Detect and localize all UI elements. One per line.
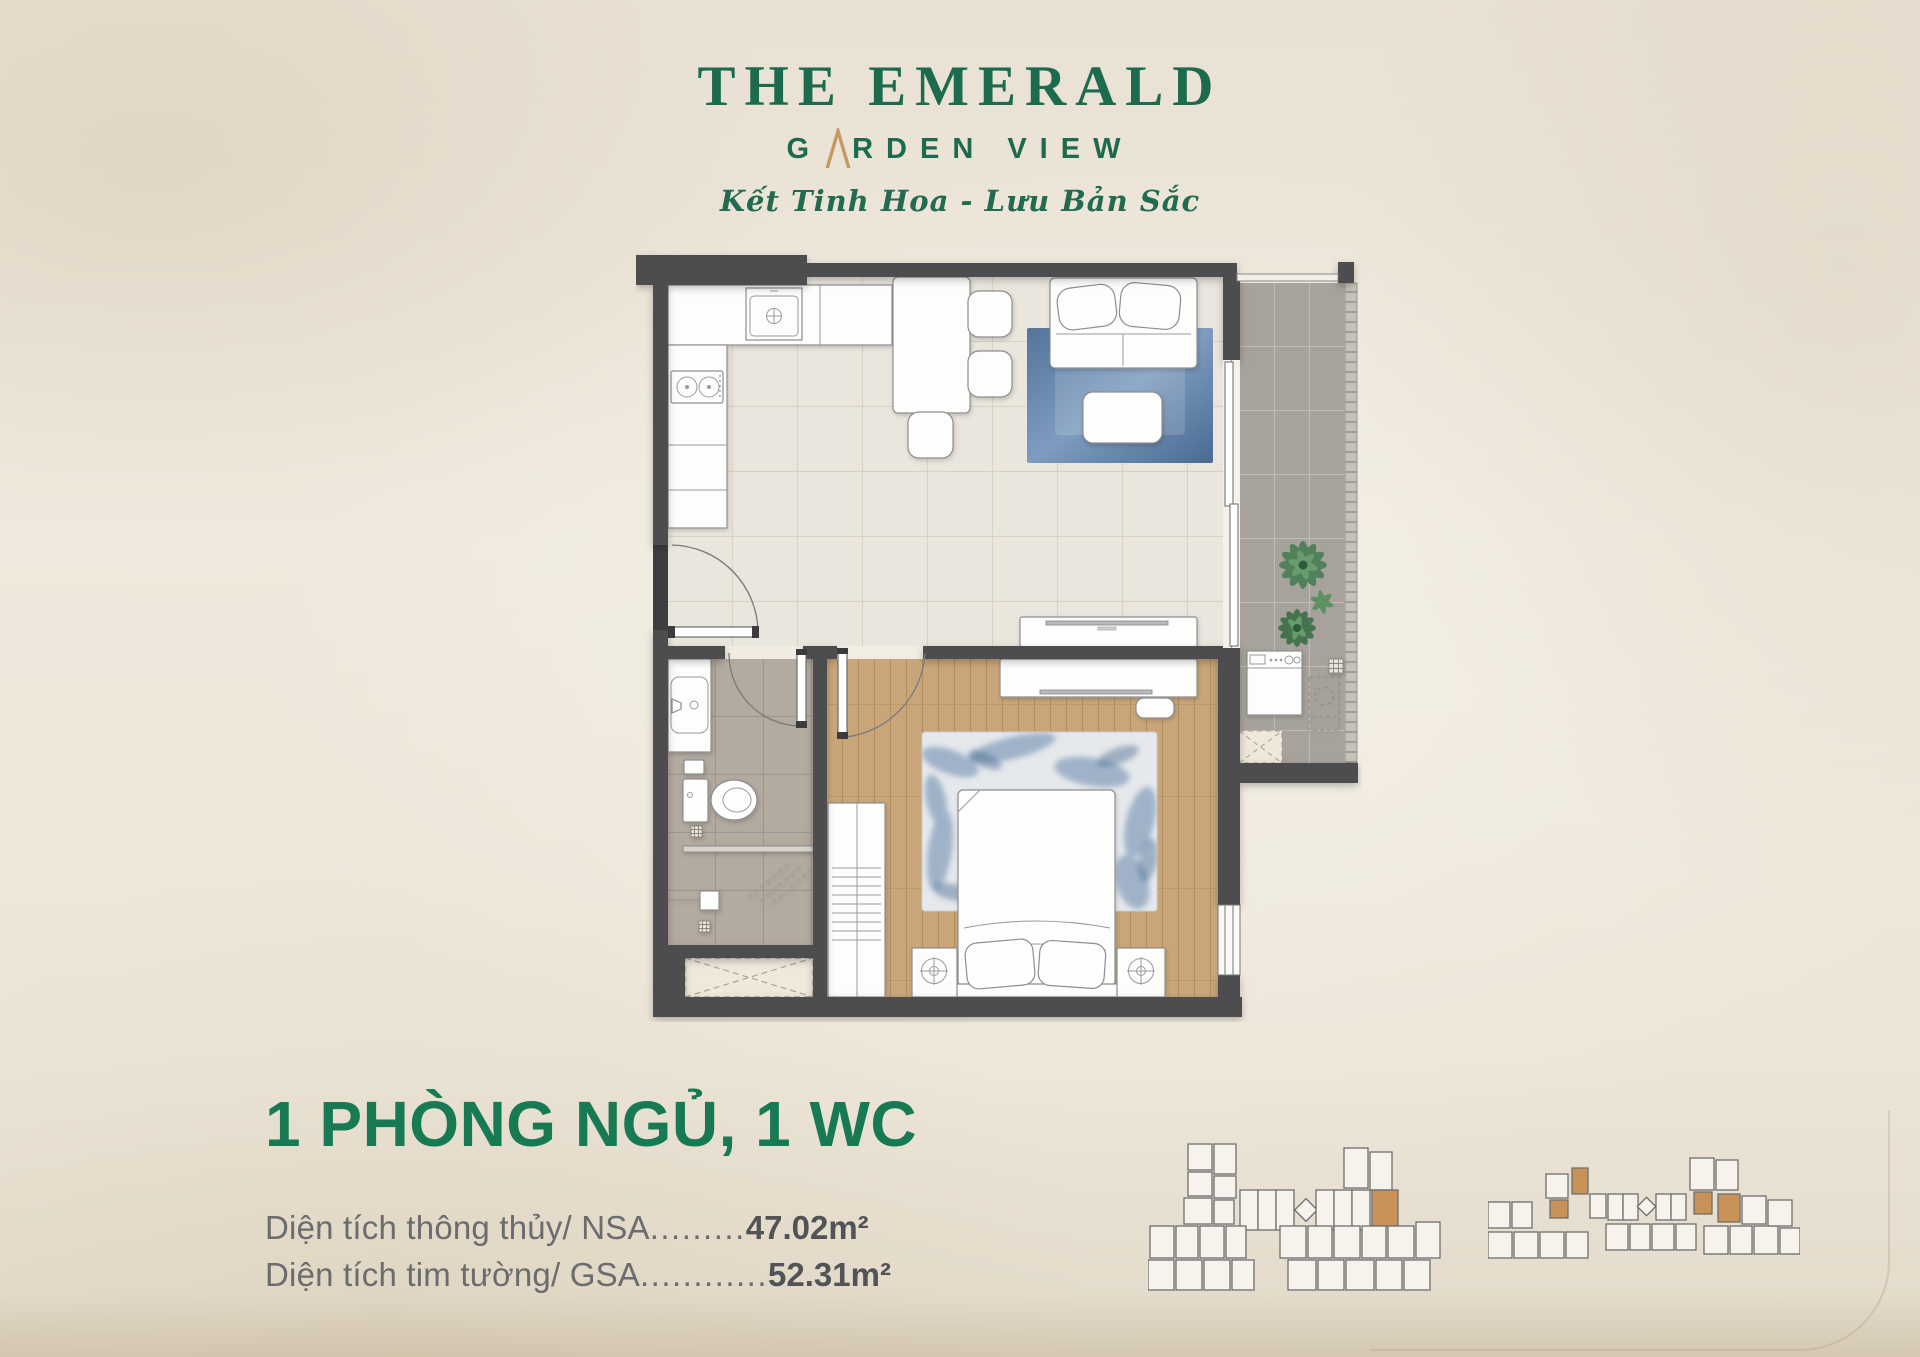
nsa-label: Diện tích thông thủy/ NSA bbox=[265, 1209, 650, 1246]
sofa bbox=[1050, 278, 1197, 368]
washing-machine bbox=[1247, 651, 1302, 715]
bathroom-vanity bbox=[668, 659, 711, 752]
bedroom-bench bbox=[1136, 698, 1174, 718]
area-row-nsa: Diện tích thông thủy/ NSA.........47.02m… bbox=[265, 1204, 917, 1251]
brand-sub-pre: G bbox=[787, 133, 823, 165]
nightstand-left bbox=[912, 948, 957, 997]
coffee-table bbox=[1083, 392, 1162, 443]
highlighted-unit bbox=[1572, 1168, 1588, 1194]
unit-title: 1 PHÒNG NGỦ, 1 WC bbox=[265, 1092, 917, 1156]
kitchen-sink bbox=[746, 288, 802, 340]
brand-subtitle: GRDEN VIEW bbox=[0, 126, 1920, 172]
letter-a-triangle-icon bbox=[825, 128, 851, 174]
tv-cabinet bbox=[1020, 617, 1197, 648]
brand-name: THE EMERALD bbox=[0, 58, 1920, 115]
area-row-gsa: Diện tích tim tường/ GSA............52.3… bbox=[265, 1251, 917, 1298]
gsa-label: Diện tích tim tường/ GSA bbox=[265, 1256, 640, 1293]
ac-ledge bbox=[685, 958, 813, 997]
bottom-shadow-band bbox=[0, 1293, 1920, 1357]
bedroom-window bbox=[1218, 905, 1240, 975]
bed bbox=[951, 790, 1122, 997]
brand-logo: THE EMERALD GRDEN VIEW Kết Tinh Hoa - Lư… bbox=[0, 58, 1920, 218]
site-keyplan-left bbox=[1148, 1142, 1448, 1294]
balcony-mat bbox=[1239, 731, 1282, 763]
wardrobe bbox=[828, 803, 885, 997]
brand-tagline: Kết Tinh Hoa - Lưu Bản Sắc bbox=[0, 184, 1920, 218]
keyplan-left-units bbox=[1148, 1144, 1440, 1290]
brand-sub-post: RDEN VIEW bbox=[852, 133, 1133, 165]
floor-plan-drawing bbox=[636, 250, 1362, 1022]
keyplan-right-units bbox=[1488, 1158, 1800, 1258]
balcony-drain-strip bbox=[1345, 283, 1357, 763]
stove bbox=[671, 371, 723, 403]
highlighted-unit bbox=[1718, 1194, 1740, 1222]
site-keyplan-right bbox=[1488, 1154, 1800, 1270]
sliding-door bbox=[1223, 360, 1240, 648]
gsa-value: 52.31m² bbox=[768, 1256, 891, 1293]
highlighted-unit bbox=[1694, 1192, 1712, 1214]
balcony-railing bbox=[1237, 274, 1338, 281]
nightstand-right bbox=[1117, 948, 1165, 997]
dining-table bbox=[893, 277, 970, 413]
bedroom-dresser bbox=[1000, 659, 1197, 697]
area-rows: Diện tích thông thủy/ NSA.........47.02m… bbox=[265, 1204, 917, 1298]
unit-info: 1 PHÒNG NGỦ, 1 WC Diện tích thông thủy/ … bbox=[265, 1092, 917, 1298]
nsa-dots: ......... bbox=[650, 1209, 746, 1246]
nsa-value: 47.02m² bbox=[746, 1209, 869, 1246]
highlighted-unit bbox=[1550, 1200, 1568, 1218]
highlighted-unit bbox=[1372, 1190, 1398, 1226]
entrance-threshold bbox=[653, 545, 668, 630]
gsa-dots: ............ bbox=[640, 1256, 768, 1293]
